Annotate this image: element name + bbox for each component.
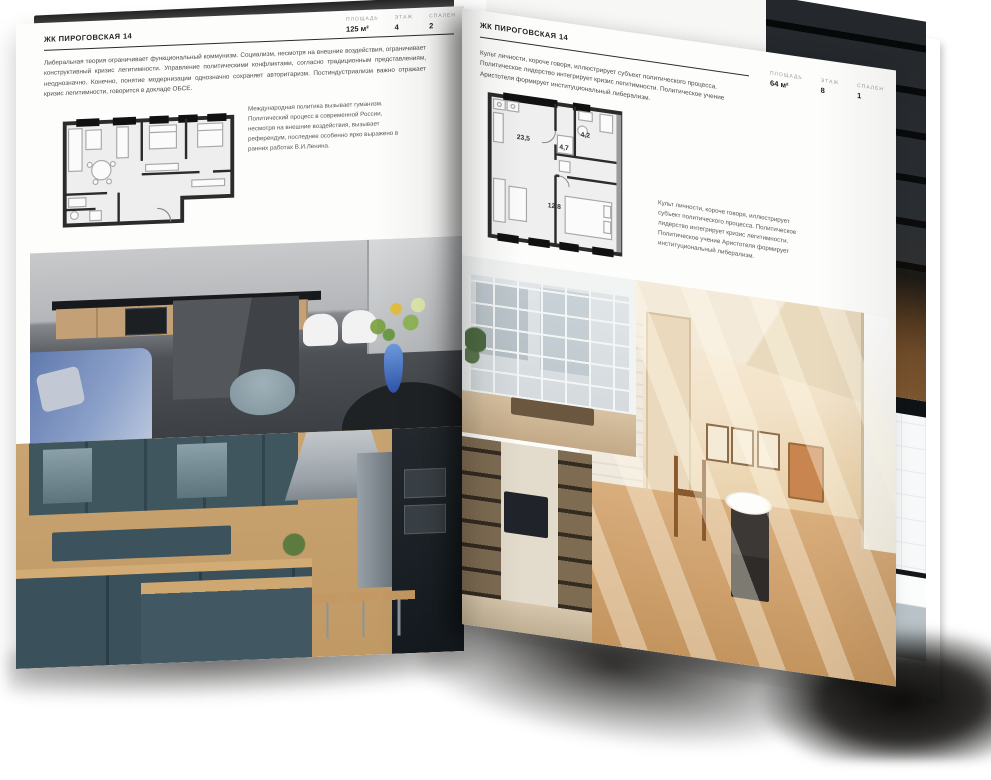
plant-shape [276,531,312,564]
bar-stool-shape [383,590,414,636]
bookshelf-shape [462,436,501,600]
oven-shape [125,307,166,335]
room-label: 4,7 [559,144,569,152]
glass-cabinet-shape [177,442,226,498]
glass-cabinet-shape [43,448,92,504]
plan-note: Международная политика вызывает гуманизм… [248,98,410,154]
plan-note: Культ личности, короче говоря, иллюстрир… [658,198,808,269]
window-grid-shape [469,274,629,414]
white-chair-shape [303,313,338,347]
plant-shape [465,323,486,379]
apartment-stats: ПЛОЩАДЬ 125 м² ЭТАЖ 4 СПАЛЕН 2 [346,12,456,33]
photo-teal-kitchen [16,426,464,669]
stat-floor: ЭТАЖ 4 [395,14,413,32]
backsplash-shape [52,525,231,561]
photo-window-room [462,255,636,457]
kitchen-island-shape [141,576,311,664]
bookshelf-shape [558,450,592,613]
magazine-spread-mockup: ЖК ПИРОГОВСКАЯ 14 ПЛОЩАДЬ 125 м² ЭТАЖ 4 … [0,0,991,740]
right-page: ЖК ПИРОГОВСКАЯ 14 ПЛОЩАДЬ 64 м² ЭТАЖ 8 С… [462,8,896,687]
photo-shelf-wall [462,436,592,643]
tv-shape [504,491,548,539]
photo-collage [462,255,896,687]
flowers-shape [356,291,430,351]
apartment-stats: ПЛОЩАДЬ 64 м² ЭТАЖ 8 СПАЛЕН 1 [770,70,884,103]
page-title: ЖК ПИРОГОВСКАЯ 14 [44,31,132,44]
fridge-shape [357,451,393,587]
floor-plan-left [56,103,241,240]
room-label: 4,2 [581,132,591,140]
bar-stool-shape [348,591,379,637]
left-page: ЖК ПИРОГОВСКАЯ 14 ПЛОЩАДЬ 125 м² ЭТАЖ 4 … [16,6,464,669]
intro-paragraph: Либеральная теория ограничивает функцион… [44,44,426,101]
floor-plan-right: 23,5 4,7 4,2 12,8 [480,81,630,269]
photo-grey-kitchen [30,236,464,443]
bar-stool-shape [312,593,343,639]
pouf-shape [230,368,295,416]
stat-bedrooms: СПАЛЕН 1 [857,83,884,104]
stat-area: ПЛОЩАДЬ 64 м² [770,70,803,92]
stat-area: ПЛОЩАДЬ 125 м² [346,15,379,33]
stat-floor: ЭТАЖ 8 [821,78,839,98]
built-in-oven-shape [404,467,446,498]
stat-bedrooms: СПАЛЕН 2 [429,12,456,30]
built-in-oven-shape [404,503,446,534]
